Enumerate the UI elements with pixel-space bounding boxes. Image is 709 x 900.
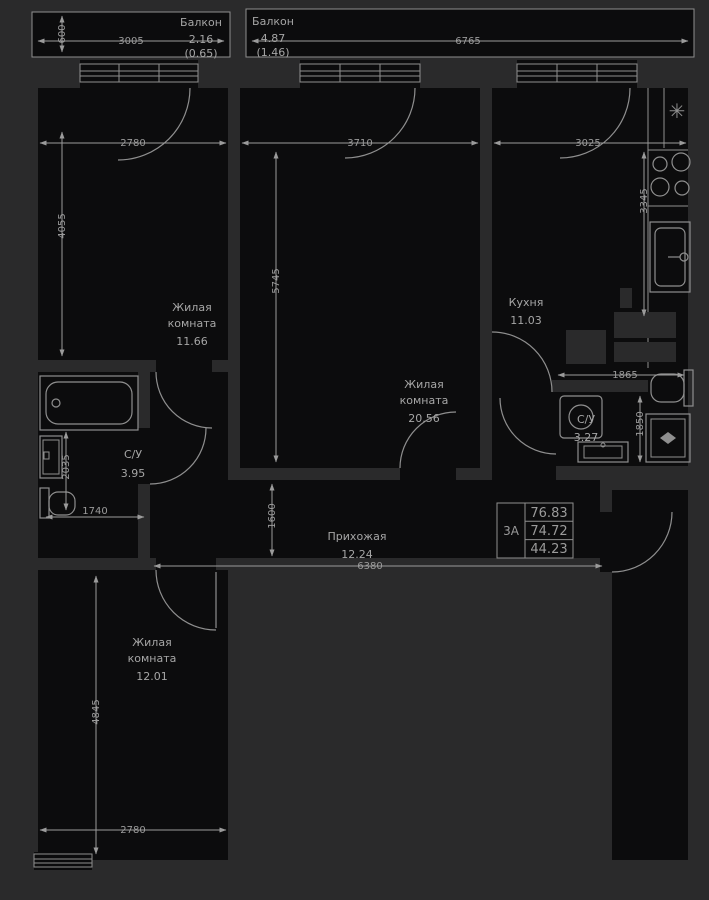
- door-opening-living1: [156, 360, 212, 372]
- door-opening-entrance: [600, 512, 612, 572]
- svg-text:11.03: 11.03: [510, 314, 542, 327]
- svg-text:4.87: 4.87: [261, 32, 286, 45]
- unit-number: 3А: [503, 524, 520, 538]
- balcony-2-floor: [246, 9, 694, 57]
- dim-balcony1-depth: 600: [57, 24, 68, 43]
- dim-bath1-width: 1740: [82, 506, 107, 517]
- door-opening-living2: [400, 468, 456, 480]
- svg-text:комната: комната: [128, 652, 177, 665]
- svg-text:3.27: 3.27: [574, 431, 599, 444]
- door-opening-living3: [156, 558, 216, 570]
- dim-living3-width: 2780: [120, 825, 145, 836]
- svg-text:Жилая: Жилая: [404, 378, 443, 391]
- dim-kitchen-height: 3345: [639, 188, 650, 213]
- floor-plan: ✳ 3005 600 6765 2780 3710 3025: [0, 0, 709, 900]
- svg-text:20.56: 20.56: [408, 412, 440, 425]
- dim-bath1-height: 2035: [61, 454, 72, 479]
- door-opening-bath2: [544, 398, 556, 454]
- dim-bath2-height: 1850: [635, 411, 646, 436]
- svg-text:комната: комната: [400, 394, 449, 407]
- dim-living1-height: 4055: [57, 213, 68, 238]
- svg-text:Балкон: Балкон: [180, 16, 222, 29]
- svg-text:2.16: 2.16: [189, 33, 214, 46]
- floor-plan-canvas: ✳ 3005 600 6765 2780 3710 3025: [0, 0, 709, 900]
- area-reduced: 74.72: [530, 524, 567, 539]
- svg-text:3.95: 3.95: [121, 467, 146, 480]
- area-total: 76.83: [530, 506, 567, 521]
- svg-text:12.24: 12.24: [341, 548, 373, 561]
- dim-balcony2-width: 6765: [455, 36, 480, 47]
- svg-text:С/У: С/У: [577, 413, 595, 426]
- door-opening-kitchen: [492, 380, 552, 392]
- svg-text:Кухня: Кухня: [509, 296, 544, 309]
- svg-text:(1.46): (1.46): [256, 46, 289, 59]
- svg-text:(0.65): (0.65): [184, 47, 217, 60]
- dim-kitchen-width: 3025: [575, 138, 600, 149]
- room-living3: [38, 570, 228, 860]
- hall-stub: [150, 372, 228, 480]
- dim-hall-width: 6380: [357, 561, 382, 572]
- stairwell-void: [612, 490, 688, 860]
- svg-text:Жилая: Жилая: [172, 301, 211, 314]
- svg-text:12.01: 12.01: [136, 670, 168, 683]
- svg-text:Прихожая: Прихожая: [328, 530, 387, 543]
- dim-living3-height: 4845: [91, 699, 102, 724]
- svg-text:11.66: 11.66: [176, 335, 208, 348]
- dim-hall-height: 1600: [267, 503, 278, 528]
- dim-living2-width: 3710: [347, 138, 372, 149]
- svg-text:Жилая: Жилая: [132, 636, 171, 649]
- snowflake-icon: ✳: [669, 99, 686, 123]
- svg-text:комната: комната: [168, 317, 217, 330]
- dim-living1-width: 2780: [120, 138, 145, 149]
- dim-bath2-width: 1865: [612, 370, 637, 381]
- dim-balcony1-width: 3005: [118, 36, 143, 47]
- svg-text:Балкон: Балкон: [252, 15, 294, 28]
- dim-living2-height: 5745: [271, 268, 282, 293]
- svg-text:С/У: С/У: [124, 448, 142, 461]
- area-living: 44.23: [530, 542, 567, 557]
